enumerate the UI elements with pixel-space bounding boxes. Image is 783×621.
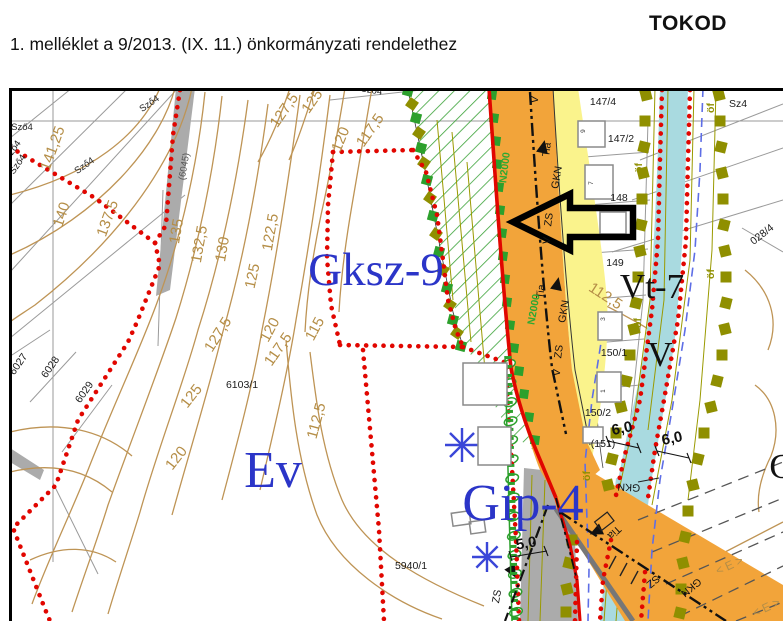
olive-boundary-marker <box>561 607 572 618</box>
zone-label-gksz9: Gksz-9 <box>308 244 444 296</box>
map-label: V <box>529 95 542 103</box>
olive-boundary-marker <box>683 506 694 517</box>
map-label: (151) <box>591 438 616 450</box>
map-label: 5,0 <box>514 533 537 553</box>
zone-label-v: V <box>647 335 672 374</box>
map-label: öf <box>705 103 717 113</box>
map-label: Tia <box>540 142 554 158</box>
map-label: 150/1 <box>601 347 627 359</box>
map-label: Sz4 <box>729 98 747 110</box>
map-label: ZS <box>490 589 504 604</box>
zone-label-gip4: Gip-4 <box>462 475 583 532</box>
map-label: GKN <box>617 480 640 493</box>
map-label: öf <box>633 163 645 173</box>
n2000-marker <box>519 389 529 399</box>
zone-label-vt7: Vt-7 <box>620 267 684 306</box>
map-label: 9 <box>580 129 587 133</box>
olive-boundary-marker <box>640 116 651 127</box>
olive-boundary-marker <box>721 272 732 283</box>
map-label: 1 <box>600 389 607 393</box>
map-label: 147/4 <box>590 96 616 108</box>
olive-boundary-marker <box>717 350 728 361</box>
map-label: 150/2 <box>585 407 611 419</box>
olive-boundary-marker <box>718 194 729 205</box>
map-label: 3 <box>600 317 607 321</box>
zone-label-partial: G <box>769 447 783 486</box>
zone-label-ev: Ev <box>244 442 302 499</box>
n2000-marker <box>514 366 524 376</box>
map-label: 5940/1 <box>395 560 427 572</box>
map-label: öf <box>705 269 717 279</box>
map-label: 7 <box>588 181 595 185</box>
map-label: Sző4 <box>11 122 33 133</box>
map-label: ZS <box>552 344 566 359</box>
map-label: 147/2 <box>608 133 634 145</box>
olive-boundary-marker <box>715 116 726 127</box>
map-label: V <box>541 236 554 244</box>
map-label: öf <box>632 318 644 328</box>
olive-boundary-marker <box>699 428 710 439</box>
map-label: 6103/1 <box>226 379 258 391</box>
zoning-map: 141,25140137,5135132,5130122,5125127,512… <box>0 0 783 621</box>
map-label: 148 <box>610 192 628 204</box>
map-label: öf <box>581 471 593 481</box>
map-label: ZS <box>542 212 556 227</box>
map-label: V <box>551 368 564 376</box>
olive-boundary-marker <box>637 194 648 205</box>
